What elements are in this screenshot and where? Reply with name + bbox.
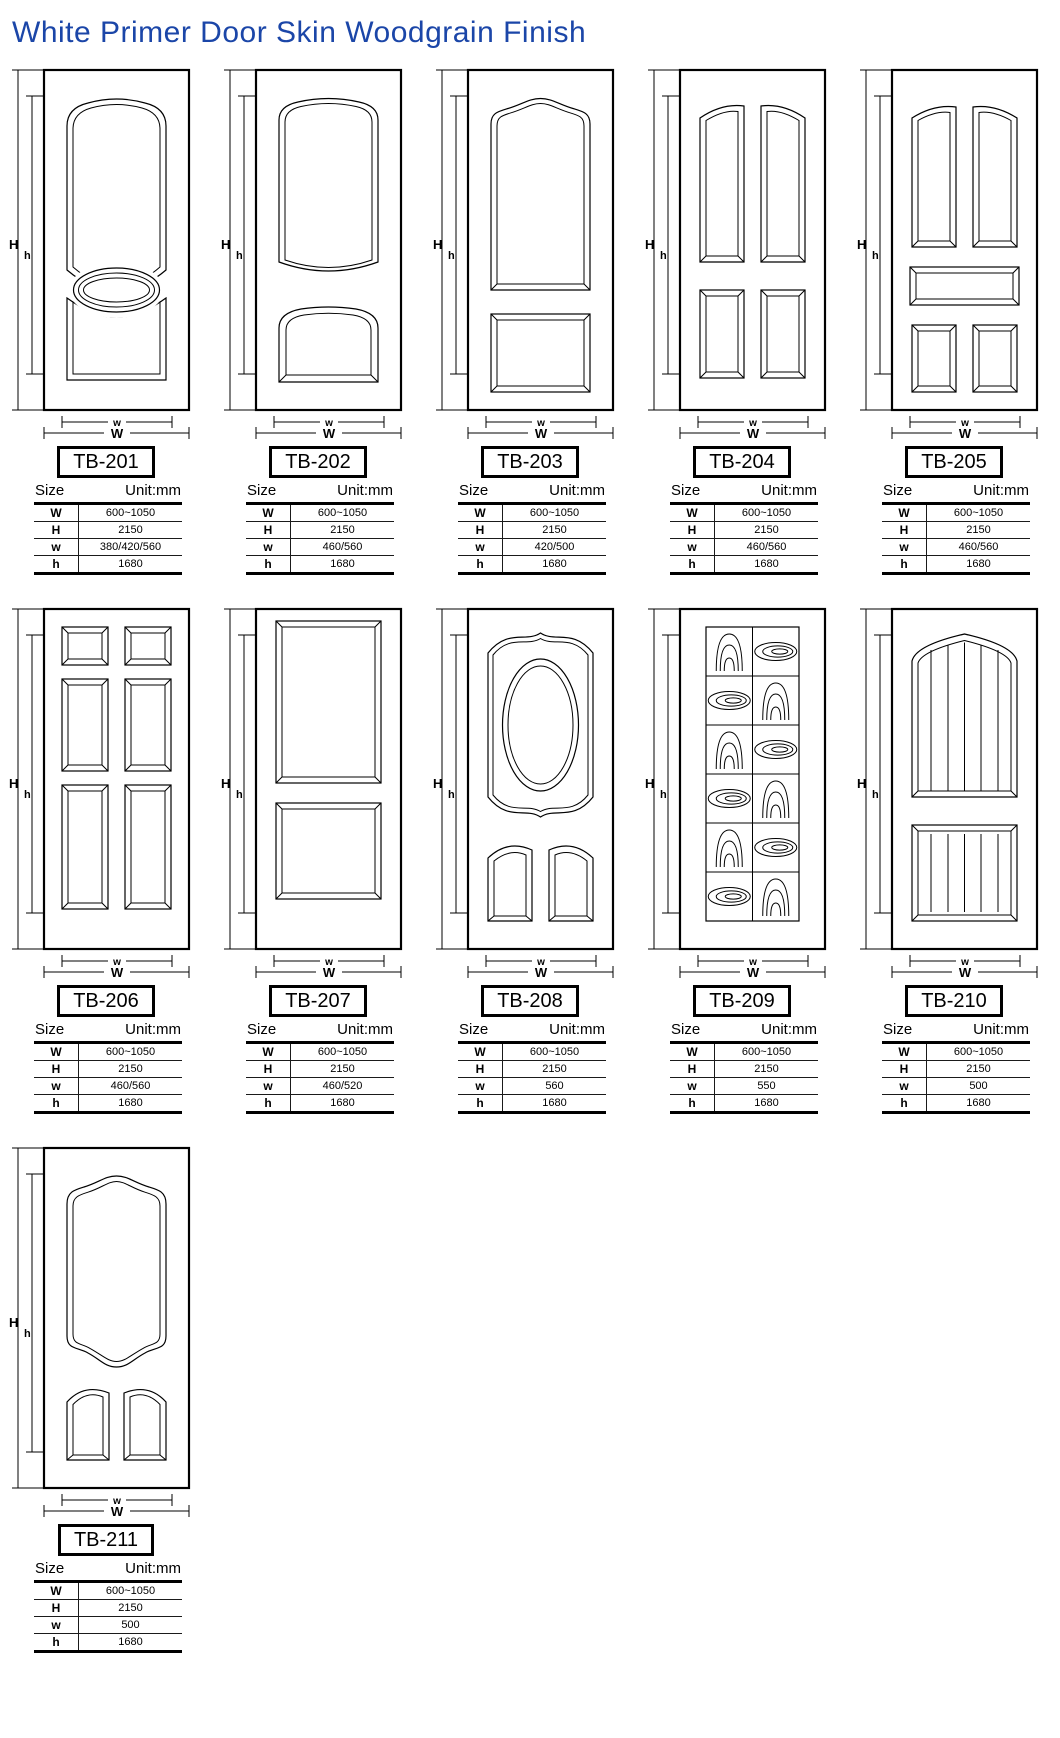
spec-table: W600~1050 H2150 w460/560 h1680	[34, 1041, 182, 1114]
door-drawing-tb-203: H h w W	[428, 62, 632, 442]
spec-tb-203: Size Unit:mm W600~1050 H2150 w420/500 h1…	[458, 481, 606, 575]
spec-row: w460/560	[670, 539, 818, 556]
spec-row: H2150	[246, 522, 394, 539]
spec-row: w460/560	[882, 539, 1030, 556]
dim-label-W: W	[535, 426, 548, 441]
spec-row-value: 460/560	[927, 539, 1031, 556]
spec-row-value: 2150	[79, 1600, 183, 1617]
catalog-row-1: H h w W TB-201 Size Unit:mm W600~1050 H2…	[0, 62, 1060, 575]
dim-label-h: h	[660, 789, 667, 801]
spec-tb-210: Size Unit:mm W600~1050 H2150 w500 h1680	[882, 1020, 1030, 1114]
spec-row: H2150	[882, 522, 1030, 539]
spec-size-label: Size	[883, 482, 912, 499]
spec-row: w550	[670, 1078, 818, 1095]
spec-table: W600~1050 H2150 w460/560 h1680	[246, 502, 394, 575]
dim-label-H: H	[433, 776, 442, 791]
spec-row-label: h	[34, 1634, 79, 1652]
spec-row: h1680	[670, 1095, 818, 1113]
model-label-tb-208: TB-208	[481, 985, 579, 1017]
dim-label-h: h	[24, 789, 31, 801]
spec-row-value: 1680	[503, 1095, 607, 1113]
spec-row-label: h	[670, 556, 715, 574]
spec-table: W600~1050 H2150 w500 h1680	[34, 1580, 182, 1653]
model-label-tb-202: TB-202	[269, 446, 367, 478]
spec-row-value: 1680	[503, 556, 607, 574]
dim-label-h: h	[872, 789, 879, 801]
spec-row: W600~1050	[246, 1043, 394, 1061]
door-cell-tb-208: H h w W TB-208 Size Unit:mm W600~1050 H2…	[424, 601, 636, 1114]
spec-row: W600~1050	[246, 504, 394, 522]
spec-row: H2150	[34, 1061, 182, 1078]
spec-row: W600~1050	[458, 1043, 606, 1061]
spec-row: h1680	[34, 1634, 182, 1652]
spec-row-value: 2150	[503, 522, 607, 539]
spec-tb-202: Size Unit:mm W600~1050 H2150 w460/560 h1…	[246, 481, 394, 575]
dim-label-h: h	[448, 789, 455, 801]
spec-row-label: H	[882, 1061, 927, 1078]
model-label-tb-210: TB-210	[905, 985, 1003, 1017]
door-drawing-tb-208: H h w W	[428, 601, 632, 981]
spec-row: W600~1050	[34, 504, 182, 522]
spec-row-label: w	[246, 539, 291, 556]
model-label-tb-209: TB-209	[693, 985, 791, 1017]
spec-row: h1680	[670, 556, 818, 574]
spec-row-value: 1680	[291, 1095, 395, 1113]
door-outline	[468, 70, 613, 410]
door-drawing-tb-206: H h w W	[4, 601, 208, 981]
spec-row-label: W	[458, 504, 503, 522]
door-cell-tb-201: H h w W TB-201 Size Unit:mm W600~1050 H2…	[0, 62, 212, 575]
dim-label-H: H	[857, 776, 866, 791]
spec-row-label: h	[882, 556, 927, 574]
spec-row-label: w	[882, 1078, 927, 1095]
spec-row-value: 600~1050	[927, 504, 1031, 522]
spec-row-value: 1680	[715, 556, 819, 574]
spec-row-label: h	[882, 1095, 927, 1113]
door-catalog: H h w W TB-201 Size Unit:mm W600~1050 H2…	[0, 62, 1060, 1653]
spec-row-value: 560	[503, 1078, 607, 1095]
door-cell-tb-210: H h w W TB-210 Size Unit:mm W600~1050 H2…	[848, 601, 1060, 1114]
spec-row: H2150	[670, 1061, 818, 1078]
spec-row-value: 1680	[715, 1095, 819, 1113]
catalog-row-3: H h w W TB-211 Size Unit:mm W600~1050 H2…	[0, 1140, 1060, 1653]
spec-row: H2150	[458, 1061, 606, 1078]
spec-row-value: 600~1050	[79, 1582, 183, 1600]
spec-row-label: h	[458, 1095, 503, 1113]
dim-label-h: h	[448, 250, 455, 262]
spec-table: W600~1050 H2150 w460/560 h1680	[882, 502, 1030, 575]
spec-unit-label: Unit:mm	[761, 482, 817, 499]
dim-label-W: W	[323, 426, 336, 441]
spec-size-label: Size	[671, 482, 700, 499]
dim-label-h: h	[236, 250, 243, 262]
spec-row-label: h	[458, 556, 503, 574]
spec-row-value: 420/500	[503, 539, 607, 556]
spec-row-label: H	[882, 522, 927, 539]
spec-row: W600~1050	[670, 1043, 818, 1061]
spec-row-value: 1680	[927, 556, 1031, 574]
spec-row: H2150	[246, 1061, 394, 1078]
spec-row-label: w	[670, 539, 715, 556]
spec-row: H2150	[34, 522, 182, 539]
spec-row-label: H	[34, 1061, 79, 1078]
spec-row-value: 500	[927, 1078, 1031, 1095]
door-outline	[680, 70, 825, 410]
spec-row-label: w	[246, 1078, 291, 1095]
dim-label-H: H	[221, 237, 230, 252]
door-outline	[44, 1148, 189, 1488]
model-label-tb-207: TB-207	[269, 985, 367, 1017]
dim-label-H: H	[9, 1315, 18, 1330]
spec-row: W600~1050	[882, 504, 1030, 522]
spec-row-label: W	[34, 504, 79, 522]
spec-row-label: W	[246, 1043, 291, 1061]
door-outline	[468, 609, 613, 949]
door-cell-tb-211: H h w W TB-211 Size Unit:mm W600~1050 H2…	[0, 1140, 212, 1653]
door-drawing-tb-205: H h w W	[852, 62, 1056, 442]
spec-row: w500	[34, 1617, 182, 1634]
spec-row-value: 600~1050	[291, 1043, 395, 1061]
door-outline	[892, 70, 1037, 410]
spec-row-label: H	[458, 1061, 503, 1078]
spec-row: h1680	[246, 1095, 394, 1113]
spec-row-label: w	[458, 1078, 503, 1095]
dim-label-h: h	[660, 250, 667, 262]
spec-table: W600~1050 H2150 w420/500 h1680	[458, 502, 606, 575]
door-drawing-tb-202: H h w W	[216, 62, 420, 442]
spec-size-label: Size	[459, 482, 488, 499]
spec-row: h1680	[882, 1095, 1030, 1113]
spec-unit-label: Unit:mm	[549, 1021, 605, 1038]
dim-label-H: H	[221, 776, 230, 791]
dim-label-h: h	[24, 1328, 31, 1340]
spec-row-label: w	[670, 1078, 715, 1095]
dim-label-W: W	[959, 426, 972, 441]
model-label-tb-203: TB-203	[481, 446, 579, 478]
spec-row-label: h	[34, 1095, 79, 1113]
spec-table: W600~1050 H2150 w460/520 h1680	[246, 1041, 394, 1114]
spec-size-label: Size	[459, 1021, 488, 1038]
spec-row-label: W	[882, 1043, 927, 1061]
spec-size-label: Size	[671, 1021, 700, 1038]
spec-row-label: W	[882, 504, 927, 522]
dim-label-W: W	[747, 965, 760, 980]
spec-size-label: Size	[247, 1021, 276, 1038]
spec-row-value: 600~1050	[79, 504, 183, 522]
spec-row-value: 2150	[715, 1061, 819, 1078]
door-outline	[44, 609, 189, 949]
dim-label-H: H	[645, 237, 654, 252]
spec-unit-label: Unit:mm	[973, 1021, 1029, 1038]
dim-label-H: H	[857, 237, 866, 252]
door-outline	[44, 70, 189, 410]
spec-row-value: 1680	[927, 1095, 1031, 1113]
door-cell-tb-209: H h w W TB-209 Size Unit:mm W600~1050 H2…	[636, 601, 848, 1114]
spec-row-value: 460/560	[291, 539, 395, 556]
spec-table: W600~1050 H2150 w500 h1680	[882, 1041, 1030, 1114]
spec-row-label: H	[34, 522, 79, 539]
spec-row: h1680	[458, 1095, 606, 1113]
spec-tb-207: Size Unit:mm W600~1050 H2150 w460/520 h1…	[246, 1020, 394, 1114]
door-outline	[256, 609, 401, 949]
spec-row: W600~1050	[34, 1582, 182, 1600]
door-cell-tb-204: H h w W TB-204 Size Unit:mm W600~1050 H2…	[636, 62, 848, 575]
spec-row-label: H	[670, 1061, 715, 1078]
dim-label-W: W	[535, 965, 548, 980]
spec-row-value: 600~1050	[715, 1043, 819, 1061]
dim-label-h: h	[236, 789, 243, 801]
spec-size-label: Size	[35, 1021, 64, 1038]
spec-row-value: 600~1050	[927, 1043, 1031, 1061]
spec-row-value: 1680	[79, 1095, 183, 1113]
spec-row: H2150	[34, 1600, 182, 1617]
spec-row-label: h	[670, 1095, 715, 1113]
catalog-row-2: H h w W TB-206 Size Unit:mm W600~1050 H2…	[0, 601, 1060, 1114]
spec-row-value: 2150	[503, 1061, 607, 1078]
dim-label-h: h	[872, 250, 879, 262]
page-title: White Primer Door Skin Woodgrain Finish	[12, 16, 1060, 50]
spec-row-label: H	[670, 522, 715, 539]
dim-label-W: W	[747, 426, 760, 441]
spec-row-value: 2150	[715, 522, 819, 539]
door-drawing-tb-204: H h w W	[640, 62, 844, 442]
spec-row: H2150	[882, 1061, 1030, 1078]
spec-table: W600~1050 H2150 w380/420/560 h1680	[34, 502, 182, 575]
spec-row: W600~1050	[882, 1043, 1030, 1061]
spec-size-label: Size	[883, 1021, 912, 1038]
door-drawing-tb-209: H h w W	[640, 601, 844, 981]
spec-row-label: h	[34, 556, 79, 574]
spec-table: W600~1050 H2150 w550 h1680	[670, 1041, 818, 1114]
dim-label-W: W	[111, 1504, 124, 1519]
spec-row-label: w	[34, 1078, 79, 1095]
spec-size-label: Size	[247, 482, 276, 499]
spec-row-label: h	[246, 1095, 291, 1113]
spec-row-label: w	[34, 1617, 79, 1634]
door-cell-tb-203: H h w W TB-203 Size Unit:mm W600~1050 H2…	[424, 62, 636, 575]
spec-row-label: w	[882, 539, 927, 556]
spec-unit-label: Unit:mm	[125, 1560, 181, 1577]
dim-label-H: H	[9, 237, 18, 252]
spec-row: w380/420/560	[34, 539, 182, 556]
door-cell-tb-202: H h w W TB-202 Size Unit:mm W600~1050 H2…	[212, 62, 424, 575]
spec-row-value: 460/560	[715, 539, 819, 556]
spec-tb-201: Size Unit:mm W600~1050 H2150 w380/420/56…	[34, 481, 182, 575]
spec-row: w500	[882, 1078, 1030, 1095]
spec-row: w460/560	[246, 539, 394, 556]
spec-row-label: H	[34, 1600, 79, 1617]
spec-row: W600~1050	[670, 504, 818, 522]
dim-label-h: h	[24, 250, 31, 262]
spec-row-label: w	[34, 539, 79, 556]
door-cell-tb-205: H h w W TB-205 Size Unit:mm W600~1050 H2…	[848, 62, 1060, 575]
spec-row-label: H	[458, 522, 503, 539]
door-outline	[256, 70, 401, 410]
spec-row-value: 550	[715, 1078, 819, 1095]
spec-row-value: 500	[79, 1617, 183, 1634]
spec-tb-204: Size Unit:mm W600~1050 H2150 w460/560 h1…	[670, 481, 818, 575]
spec-row-label: W	[34, 1043, 79, 1061]
door-drawing-tb-210: H h w W	[852, 601, 1056, 981]
door-cell-tb-207: H h w W TB-207 Size Unit:mm W600~1050 H2…	[212, 601, 424, 1114]
spec-row-label: W	[246, 504, 291, 522]
spec-row-value: 600~1050	[715, 504, 819, 522]
spec-row-value: 1680	[79, 556, 183, 574]
spec-row-label: W	[34, 1582, 79, 1600]
spec-row-value: 2150	[291, 522, 395, 539]
spec-size-label: Size	[35, 482, 64, 499]
spec-table: W600~1050 H2150 w460/560 h1680	[670, 502, 818, 575]
dim-label-H: H	[645, 776, 654, 791]
spec-row: w420/500	[458, 539, 606, 556]
spec-tb-211: Size Unit:mm W600~1050 H2150 w500 h1680	[34, 1559, 182, 1653]
spec-row-value: 460/520	[291, 1078, 395, 1095]
spec-row: w560	[458, 1078, 606, 1095]
spec-row-label: W	[458, 1043, 503, 1061]
dim-label-H: H	[433, 237, 442, 252]
spec-row: W600~1050	[34, 1043, 182, 1061]
spec-unit-label: Unit:mm	[125, 482, 181, 499]
spec-tb-205: Size Unit:mm W600~1050 H2150 w460/560 h1…	[882, 481, 1030, 575]
spec-row-value: 600~1050	[503, 1043, 607, 1061]
spec-row-value: 600~1050	[503, 504, 607, 522]
model-label-tb-204: TB-204	[693, 446, 791, 478]
spec-row: h1680	[458, 556, 606, 574]
model-label-tb-201: TB-201	[57, 446, 155, 478]
spec-row-value: 380/420/560	[79, 539, 183, 556]
spec-row: h1680	[246, 556, 394, 574]
spec-row-value: 460/560	[79, 1078, 183, 1095]
spec-unit-label: Unit:mm	[761, 1021, 817, 1038]
spec-row-label: h	[246, 556, 291, 574]
spec-row-label: H	[246, 1061, 291, 1078]
spec-row: h1680	[34, 556, 182, 574]
dim-label-H: H	[9, 776, 18, 791]
spec-row-label: w	[458, 539, 503, 556]
spec-row: w460/560	[34, 1078, 182, 1095]
spec-row: W600~1050	[458, 504, 606, 522]
model-label-tb-211: TB-211	[58, 1524, 154, 1556]
spec-row-value: 2150	[927, 522, 1031, 539]
spec-row-value: 600~1050	[79, 1043, 183, 1061]
spec-row-label: H	[246, 522, 291, 539]
spec-row: h1680	[882, 556, 1030, 574]
spec-row-value: 1680	[79, 1634, 183, 1652]
spec-row-label: W	[670, 504, 715, 522]
spec-unit-label: Unit:mm	[337, 482, 393, 499]
dim-label-W: W	[111, 426, 124, 441]
spec-tb-209: Size Unit:mm W600~1050 H2150 w550 h1680	[670, 1020, 818, 1114]
spec-row-value: 2150	[79, 522, 183, 539]
spec-row: h1680	[34, 1095, 182, 1113]
spec-tb-208: Size Unit:mm W600~1050 H2150 w560 h1680	[458, 1020, 606, 1114]
spec-row-value: 1680	[291, 556, 395, 574]
spec-row-value: 2150	[927, 1061, 1031, 1078]
door-drawing-tb-207: H h w W	[216, 601, 420, 981]
spec-unit-label: Unit:mm	[337, 1021, 393, 1038]
model-label-tb-205: TB-205	[905, 446, 1003, 478]
spec-table: W600~1050 H2150 w560 h1680	[458, 1041, 606, 1114]
door-cell-tb-206: H h w W TB-206 Size Unit:mm W600~1050 H2…	[0, 601, 212, 1114]
spec-unit-label: Unit:mm	[973, 482, 1029, 499]
dim-label-W: W	[323, 965, 336, 980]
dim-label-W: W	[959, 965, 972, 980]
spec-row-value: 2150	[79, 1061, 183, 1078]
dim-label-W: W	[111, 965, 124, 980]
spec-unit-label: Unit:mm	[125, 1021, 181, 1038]
spec-row: H2150	[458, 522, 606, 539]
spec-row: w460/520	[246, 1078, 394, 1095]
door-drawing-tb-201: H h w W	[4, 62, 208, 442]
spec-unit-label: Unit:mm	[549, 482, 605, 499]
spec-row-value: 600~1050	[291, 504, 395, 522]
spec-row: H2150	[670, 522, 818, 539]
door-drawing-tb-211: H h w W	[4, 1140, 208, 1520]
model-label-tb-206: TB-206	[57, 985, 155, 1017]
spec-row-label: W	[670, 1043, 715, 1061]
spec-tb-206: Size Unit:mm W600~1050 H2150 w460/560 h1…	[34, 1020, 182, 1114]
spec-size-label: Size	[35, 1560, 64, 1577]
spec-row-value: 2150	[291, 1061, 395, 1078]
